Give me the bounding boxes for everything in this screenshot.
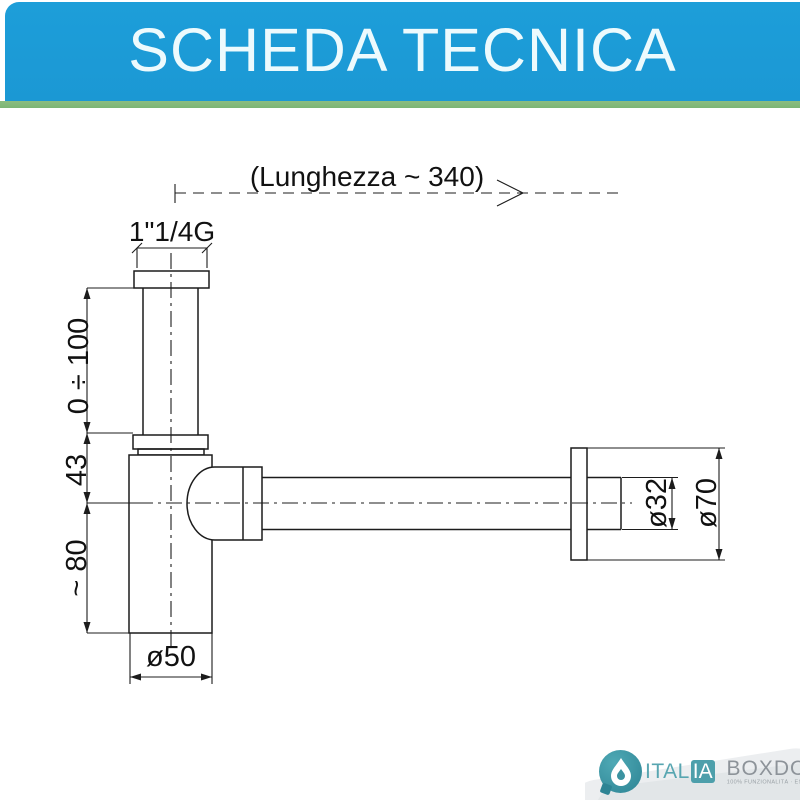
length-dimension: (Lunghezza ~ 340) xyxy=(175,161,620,206)
brand-name-ital: ITAL xyxy=(645,761,690,782)
brand-name-boxdoccia: BOXDOCCIA xyxy=(727,758,800,779)
brand-logo: ITALIA BOXDOCCIA 100% FUNZIONALITÀ · EST… xyxy=(585,738,800,800)
brand-name-ia: IA xyxy=(691,760,715,783)
brand-tagline: 100% FUNZIONALITÀ · ESTETICA · PRATICITÀ xyxy=(726,780,800,786)
flange-diameter-label: ø70 xyxy=(691,478,723,528)
header-bar: SCHEDA TECNICA xyxy=(5,2,800,102)
length-dimension-label: (Lunghezza ~ 340) xyxy=(250,161,484,192)
thread-label: 1"1/4G xyxy=(129,216,215,247)
technical-drawing: (Lunghezza ~ 340) 1"1/4G xyxy=(0,0,800,800)
siphon-outline xyxy=(129,271,621,633)
body-height-label: ~ 80 xyxy=(61,539,93,596)
page-title: SCHEDA TECNICA xyxy=(128,20,676,85)
height-range-label: 0 ÷ 100 xyxy=(63,318,95,415)
thread-dimension: 1"1/4G xyxy=(129,216,215,268)
header-accent-strip xyxy=(0,101,800,108)
brand-name: ITALIA BOXDOCCIA 100% FUNZIONALITÀ · EST… xyxy=(645,758,800,786)
pipe-diameter-label: ø32 xyxy=(641,478,673,528)
wall-flange xyxy=(571,448,587,560)
water-drop-icon xyxy=(599,750,642,793)
inlet-offset-label: 43 xyxy=(61,454,93,486)
